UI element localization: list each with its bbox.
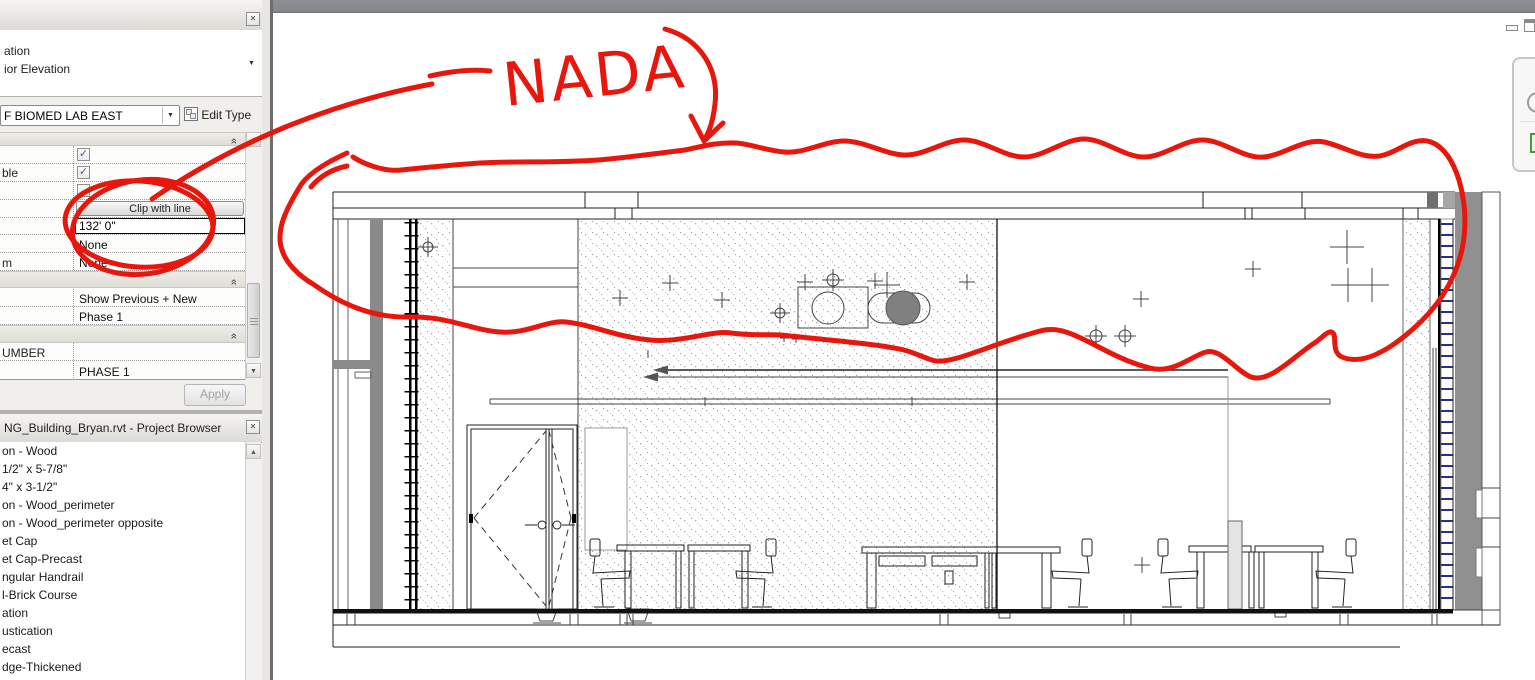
chevron-down-icon[interactable]: ▼ <box>162 107 178 124</box>
minimize-icon[interactable] <box>1506 25 1518 31</box>
edit-type-button[interactable]: Edit Type <box>184 107 251 124</box>
list-item[interactable]: l-Brick Course <box>0 586 245 604</box>
properties-palette-titlebar: ✕ <box>0 0 262 31</box>
scrollbar-thumb[interactable] <box>247 283 260 358</box>
collapse-chevron-icon[interactable]: » <box>228 138 240 144</box>
properties-scrollbar[interactable]: ▲ ▼ <box>245 132 261 380</box>
list-item[interactable]: on - Wood_perimeter opposite <box>0 514 245 532</box>
instance-selector[interactable]: F BIOMED LAB EAST ▼ <box>0 105 180 126</box>
phase-filter-value[interactable]: Show Previous + New <box>79 292 197 306</box>
property-row: Clip with line <box>0 200 245 218</box>
navigation-bar <box>1512 57 1535 172</box>
apply-button[interactable]: Apply <box>184 384 246 406</box>
project-browser-titlebar: NG_Building_Bryan.rvt - Project Browser … <box>0 414 262 443</box>
list-item[interactable]: ngular Handrail <box>0 568 245 586</box>
type-selector[interactable]: ation ior Elevation ▼ <box>0 30 262 97</box>
close-icon[interactable]: ✕ <box>246 12 260 26</box>
property-value[interactable]: None <box>79 238 108 252</box>
steering-wheel-icon[interactable] <box>1527 92 1535 113</box>
property-row[interactable]: None <box>0 235 245 253</box>
property-row[interactable] <box>0 182 245 200</box>
collapse-chevron-icon[interactable]: » <box>228 333 240 339</box>
list-item[interactable]: ation <box>0 604 245 622</box>
section-header[interactable]: » <box>0 271 245 288</box>
left-panel-column: ✕ ation ior Elevation ▼ F BIOMED LAB EAS… <box>0 0 262 680</box>
property-row[interactable]: Show Previous + New <box>0 288 245 307</box>
property-value[interactable]: None <box>79 256 108 270</box>
section-header[interactable]: » <box>0 325 245 343</box>
project-browser-list: on - Wood1/2" x 5-7/8"4" x 3-1/2"on - Wo… <box>0 442 245 680</box>
list-item[interactable]: et Cap-Precast <box>0 550 245 568</box>
type-selector-line2: ior Elevation <box>4 62 70 76</box>
property-label: m <box>2 256 12 270</box>
project-browser-title: NG_Building_Bryan.rvt - Project Browser <box>4 421 221 435</box>
property-row[interactable]: Phase 1 <box>0 307 245 325</box>
properties-grid: » ✓ ble ✓ Clip with line 132' 0" None m … <box>0 132 245 380</box>
browser-scrollbar[interactable]: ▲ <box>245 442 261 680</box>
list-item[interactable]: et Cap <box>0 532 245 550</box>
list-item[interactable]: 1/2" x 5-7/8" <box>0 460 245 478</box>
checkbox-checked[interactable]: ✓ <box>77 166 90 179</box>
collapse-chevron-icon[interactable]: » <box>228 279 240 285</box>
section-header[interactable]: » <box>0 132 245 146</box>
scroll-up-icon[interactable]: ▲ <box>246 444 261 459</box>
instance-selector-value: F BIOMED LAB EAST <box>4 109 123 123</box>
list-item[interactable]: on - Wood_perimeter <box>0 496 245 514</box>
number-label: UMBER <box>2 346 45 360</box>
far-clipping-button[interactable]: Clip with line <box>76 201 244 216</box>
instance-selector-row: F BIOMED LAB EAST ▼ Edit Type <box>0 97 262 132</box>
type-selector-line1: ation <box>4 44 30 58</box>
phase-caps-value[interactable]: PHASE 1 <box>79 365 130 379</box>
view-window-top-strip <box>273 0 1535 13</box>
chevron-down-icon[interactable]: ▼ <box>248 60 255 67</box>
restore-icon[interactable] <box>1524 19 1535 32</box>
phase-value[interactable]: Phase 1 <box>79 310 123 324</box>
list-item[interactable]: dge-Thickened <box>0 658 245 676</box>
cube-view-icon[interactable] <box>1530 133 1535 153</box>
panel-canvas-divider[interactable] <box>262 0 273 680</box>
far-clip-offset-field[interactable]: 132' 0" <box>75 218 245 234</box>
close-icon[interactable]: ✕ <box>246 420 260 434</box>
edit-type-icon <box>184 107 198 121</box>
apply-zone: Apply <box>0 380 262 410</box>
property-row[interactable]: PHASE 1 <box>0 361 245 380</box>
property-row[interactable]: ble ✓ <box>0 164 245 182</box>
list-item[interactable]: ustication <box>0 622 245 640</box>
property-row[interactable]: ✓ <box>0 146 245 164</box>
property-label: ble <box>2 166 18 180</box>
property-row[interactable]: UMBER <box>0 343 245 361</box>
revit-screenshot: { "icons": { "close": "✕", "dropdown": "… <box>0 0 1535 680</box>
list-item[interactable]: ecast <box>0 640 245 658</box>
divider <box>1520 121 1535 122</box>
drawing-canvas[interactable] <box>273 13 1535 680</box>
scroll-up-icon[interactable]: ▲ <box>246 132 261 147</box>
list-item[interactable]: 4" x 3-1/2" <box>0 478 245 496</box>
property-row: 132' 0" <box>0 218 245 235</box>
property-row[interactable]: m None <box>0 253 245 271</box>
checkbox-checked[interactable]: ✓ <box>77 148 90 161</box>
edit-type-label: Edit Type <box>201 108 251 122</box>
list-item[interactable]: on - Wood <box>0 442 245 460</box>
scroll-down-icon[interactable]: ▼ <box>246 363 261 378</box>
checkbox-unchecked[interactable] <box>77 184 90 197</box>
